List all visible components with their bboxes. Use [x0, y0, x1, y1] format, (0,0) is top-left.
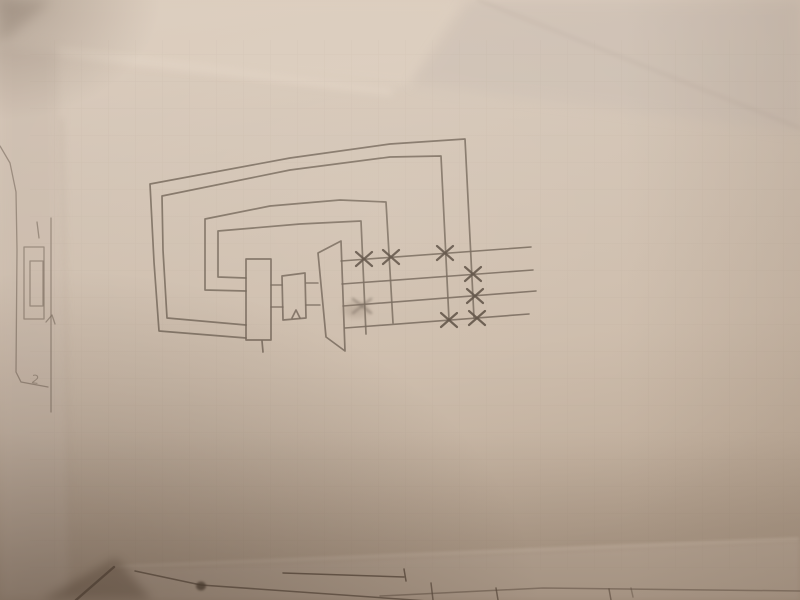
- right-edge-vignette: [0, 0, 800, 600]
- screenshot-root: 2: [0, 0, 800, 600]
- photo-of-hand-drawn-schematic: 2: [0, 0, 800, 600]
